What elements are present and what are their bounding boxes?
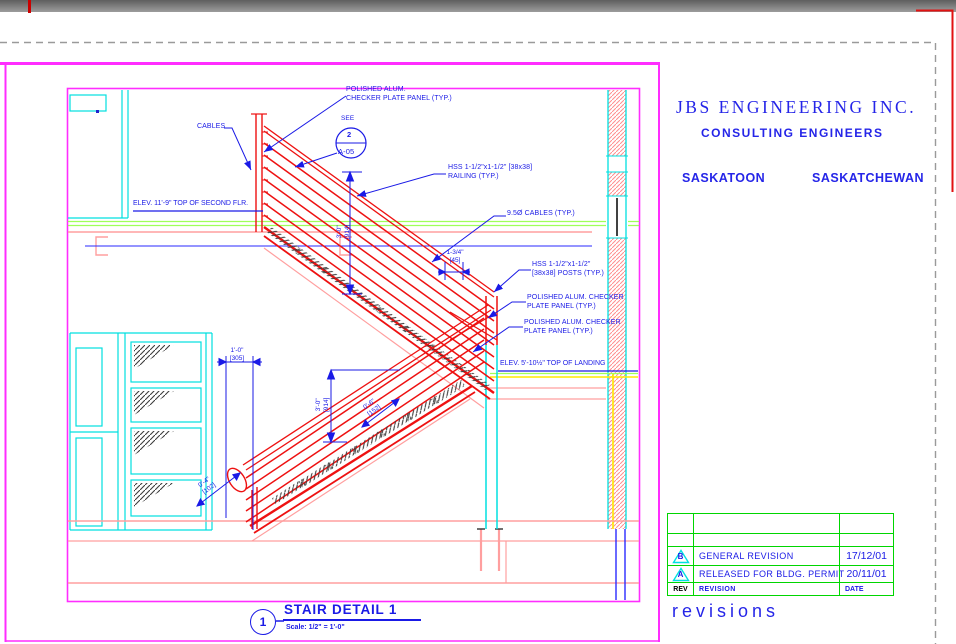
company-subtitle: CONSULTING ENGINEERS bbox=[701, 126, 883, 140]
revision-date: 17/12/01 bbox=[839, 547, 893, 565]
note-panel-mid2: POLISHED ALUM. CHECKER PLATE PANEL (TYP.… bbox=[524, 319, 621, 337]
revision-delta-icon: B bbox=[672, 549, 690, 564]
revision-row-empty bbox=[668, 533, 893, 546]
revision-header-row: REV REVISION DATE bbox=[668, 582, 893, 595]
company-name: JBS ENGINEERING INC. bbox=[676, 97, 916, 118]
revision-delta-icon: A bbox=[672, 567, 690, 582]
second-floor bbox=[67, 222, 640, 256]
revision-description: GENERAL REVISION bbox=[693, 547, 839, 565]
revision-row: B GENERAL REVISION 17/12/01 bbox=[668, 546, 893, 565]
drawing-sheet: POLISHED ALUM. CHECKER PLATE PANEL (TYP.… bbox=[0, 0, 956, 644]
dim-clear: 1'-0" [305] bbox=[215, 347, 259, 363]
revision-row: A RELEASED FOR BLDG. PERMIT 20/11/01 bbox=[668, 565, 893, 582]
company-province: SASKATCHEWAN bbox=[812, 171, 924, 185]
note-cables: CABLES bbox=[197, 123, 225, 132]
left-wall bbox=[67, 90, 128, 218]
note-panel-mid1: POLISHED ALUM. CHECKER PLATE PANEL (TYP.… bbox=[527, 294, 624, 312]
elev-second-floor: ELEV. 11'-9" TOP OF SECOND FLR. bbox=[133, 200, 248, 207]
note-posts: HSS 1-1/2"x1-1/2" [38x38] POSTS (TYP.) bbox=[532, 261, 604, 279]
sheet-border bbox=[0, 63, 660, 642]
revision-mark: A bbox=[672, 571, 690, 579]
detail-scale: Scale: 1/2" = 1'-0" bbox=[286, 624, 345, 631]
revision-header-rev: REV bbox=[668, 583, 693, 595]
detail-number: 1 bbox=[260, 615, 267, 629]
revision-header-date: DATE bbox=[839, 583, 893, 595]
note-cable-dia: 9.5Ø CABLES (TYP.) bbox=[507, 210, 575, 219]
revision-date: 20/11/01 bbox=[839, 566, 893, 582]
lower-treads bbox=[272, 380, 465, 504]
company-city: SASKATOON bbox=[682, 171, 765, 185]
leader-panel-mid1 bbox=[488, 302, 526, 318]
elev-landing: ELEV. 5'-10½" TOP OF LANDING bbox=[500, 360, 606, 367]
dim-offset: 1-3/4" [45] bbox=[437, 249, 473, 265]
leader-callout bbox=[295, 153, 337, 167]
note-panel-top: POLISHED ALUM. CHECKER PLATE PANEL (TYP.… bbox=[346, 86, 452, 104]
leader-railing bbox=[357, 174, 446, 196]
railing bbox=[264, 126, 494, 292]
detail-number-bubble: 1 bbox=[250, 609, 276, 635]
leader-cables bbox=[224, 128, 251, 170]
revision-mark: B bbox=[672, 553, 690, 561]
revision-header-revision: REVISION bbox=[693, 583, 839, 595]
leader-posts bbox=[494, 270, 531, 292]
annotation-graphics bbox=[133, 96, 638, 621]
callout-see-label: SEE bbox=[341, 115, 354, 123]
revision-table: B GENERAL REVISION 17/12/01 A RELEASED F… bbox=[667, 513, 894, 596]
revision-description: RELEASED FOR BLDG. PERMIT bbox=[693, 566, 839, 582]
dim-rail-height-upper: 3'-0" [914] bbox=[336, 204, 352, 260]
callout-number: 2 bbox=[347, 130, 351, 139]
dim-rail-height-lower: 3'-0" [914] bbox=[315, 377, 331, 433]
detail-title: STAIR DETAIL 1 bbox=[284, 602, 411, 621]
drawing-linework bbox=[67, 90, 640, 600]
revisions-label: revisions bbox=[672, 601, 779, 622]
cabinet-glass-hatch bbox=[134, 345, 174, 507]
note-railing: HSS 1-1/2"x1-1/2" [38x38] RAILING (TYP.) bbox=[448, 164, 532, 182]
corner-mark-icon bbox=[28, 0, 31, 13]
leader-panel-top bbox=[264, 96, 346, 152]
callout-sheet: A-05 bbox=[338, 147, 354, 156]
revision-row-empty bbox=[668, 514, 893, 533]
ground-floor bbox=[67, 521, 640, 600]
